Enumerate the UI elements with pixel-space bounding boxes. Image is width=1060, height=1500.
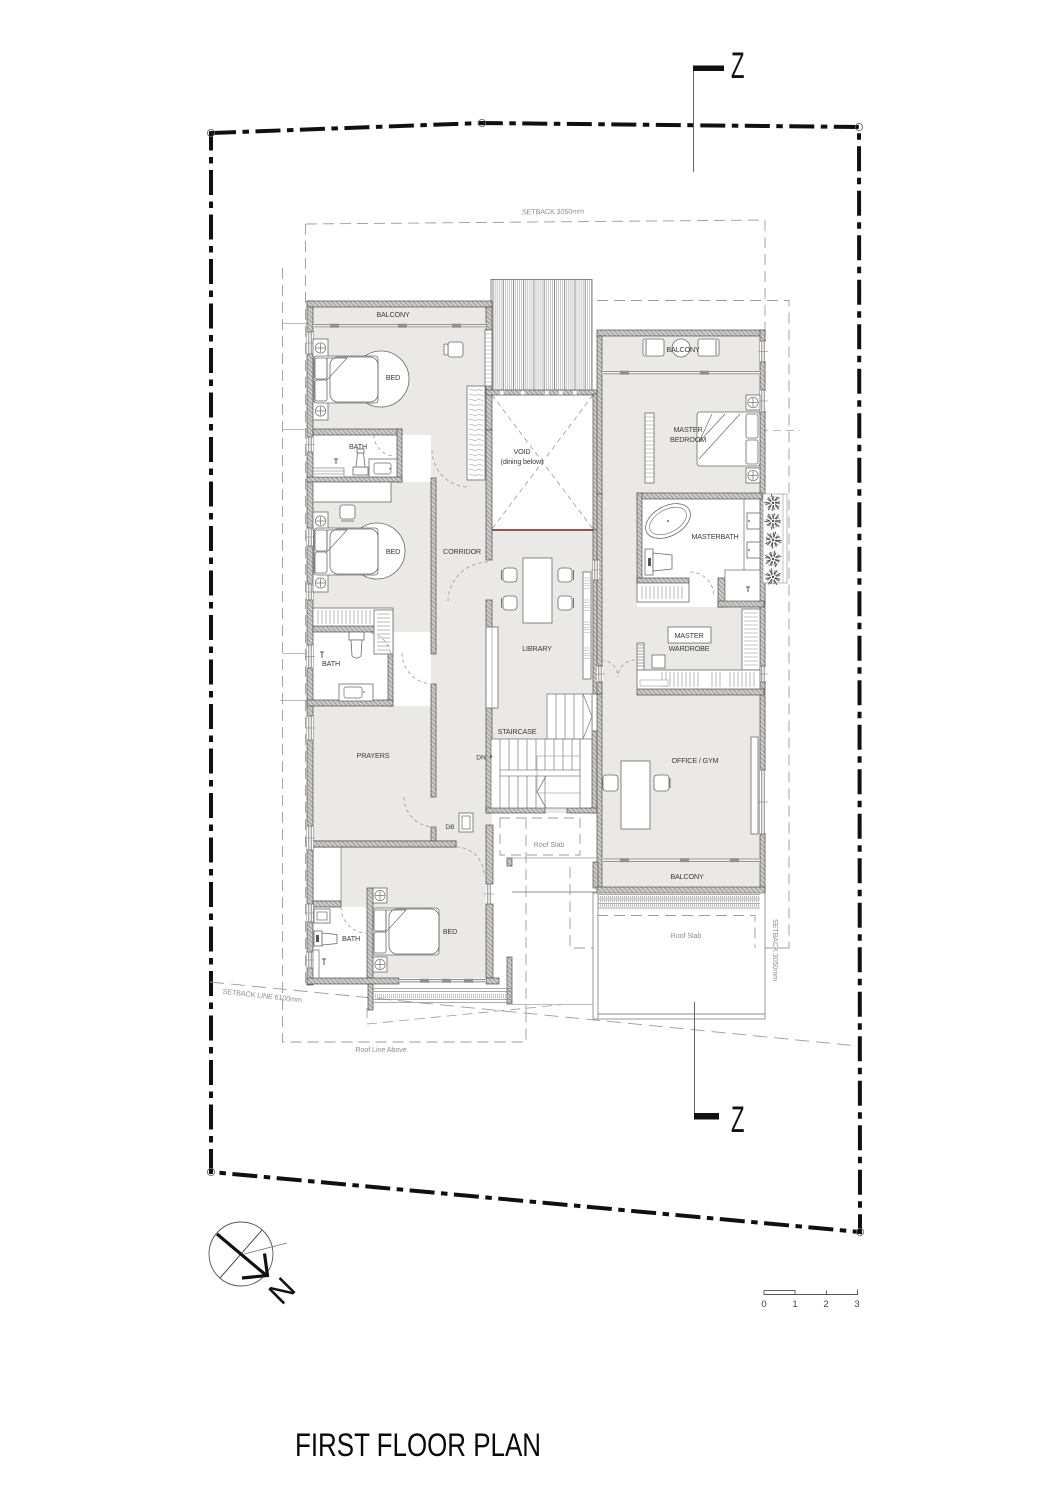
svg-text:Roof Slab: Roof Slab (671, 931, 702, 940)
svg-text:Z: Z (731, 1099, 745, 1140)
svg-text:Z: Z (731, 45, 745, 86)
svg-text:WARDROBE: WARDROBE (669, 644, 710, 653)
svg-text:BALCONY: BALCONY (666, 345, 700, 354)
svg-text:CORRIDOR: CORRIDOR (443, 547, 481, 556)
svg-text:DN: DN (476, 755, 486, 762)
svg-text:OFFICE / GYM: OFFICE / GYM (672, 756, 719, 765)
svg-text:(dining below): (dining below) (501, 457, 544, 466)
svg-text:MASTER: MASTER (673, 425, 702, 434)
svg-text:BEDROOM: BEDROOM (670, 435, 706, 444)
svg-text:SETBACK 3050mm: SETBACK 3050mm (522, 207, 584, 217)
svg-text:BATH: BATH (342, 934, 360, 943)
svg-text:FIRST FLOOR PLAN: FIRST FLOOR PLAN (295, 1427, 541, 1463)
svg-text:3: 3 (854, 1299, 859, 1310)
svg-text:PRAYERS: PRAYERS (357, 751, 390, 760)
svg-text:MASTERBATH: MASTERBATH (691, 532, 738, 541)
svg-text:LIBRARY: LIBRARY (522, 644, 552, 653)
svg-text:BED: BED (386, 373, 400, 382)
svg-text:SETBACK 3050mm: SETBACK 3050mm (771, 919, 780, 981)
svg-text:BED: BED (386, 547, 400, 556)
svg-text:0: 0 (761, 1299, 766, 1310)
svg-text:BED: BED (443, 927, 457, 936)
svg-text:DB: DB (445, 824, 455, 831)
svg-text:BATH: BATH (349, 442, 367, 451)
svg-text:VOID: VOID (514, 447, 531, 456)
svg-text:BALCONY: BALCONY (376, 310, 410, 319)
svg-text:Roof Slab: Roof Slab (534, 840, 565, 849)
svg-text:BATH: BATH (322, 659, 340, 668)
svg-text:1: 1 (792, 1299, 797, 1310)
svg-text:MASTER: MASTER (674, 631, 703, 640)
svg-text:2: 2 (823, 1299, 828, 1310)
svg-text:Roof Line Above: Roof Line Above (355, 1045, 406, 1054)
svg-text:BALCONY: BALCONY (670, 872, 704, 881)
svg-text:STAIRCASE: STAIRCASE (498, 727, 537, 736)
